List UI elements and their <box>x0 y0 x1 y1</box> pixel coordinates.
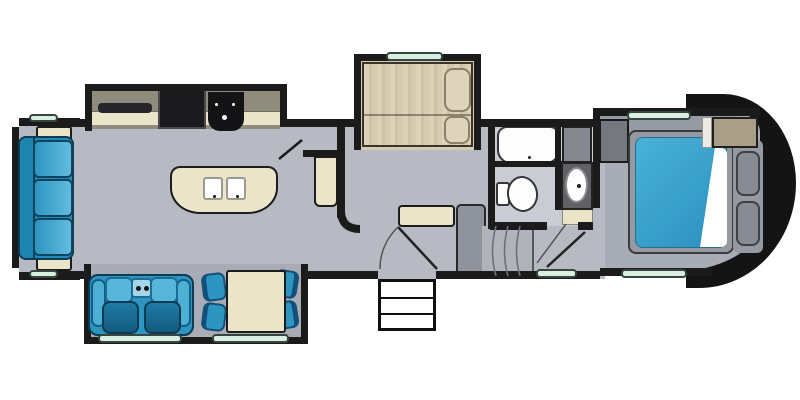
pillow <box>444 68 471 112</box>
pillow <box>736 201 760 246</box>
vanity-sink-oval <box>565 167 588 203</box>
seat-back <box>150 277 178 303</box>
window-rear-top <box>29 114 58 122</box>
sofabed-wall-right <box>474 54 481 150</box>
burner-dot <box>232 103 235 106</box>
cupholder <box>144 286 149 291</box>
partition-wall-vertical <box>337 122 345 218</box>
window-slideout-right <box>212 334 289 343</box>
shower-tub <box>497 126 560 164</box>
window-slideout-left <box>98 334 182 343</box>
bath-wall-under-tub <box>490 161 562 167</box>
partition-wall-stub <box>303 150 345 157</box>
window-bedroom-bottom <box>621 269 687 278</box>
top-wall-1 <box>55 119 92 127</box>
seat-back <box>105 277 133 303</box>
bath-wall-bottom <box>490 222 547 230</box>
faucet-dot <box>236 195 239 198</box>
top-wall-2 <box>281 119 361 127</box>
rv-floorplan <box>0 0 800 400</box>
nightstand-panel <box>733 140 763 253</box>
vanity-counter <box>561 162 593 210</box>
wardrobe-dresser <box>599 119 629 163</box>
top-wall-3 <box>474 119 600 127</box>
burner-dot <box>215 103 218 106</box>
window-sofabed <box>386 52 443 61</box>
kitchen-slideout-wall-top <box>85 84 287 91</box>
pillow <box>444 116 470 144</box>
cupholder-console <box>131 278 152 298</box>
range-cooktop <box>208 92 244 131</box>
sofabed-wall-left <box>354 54 361 150</box>
seat-cushion <box>102 301 139 334</box>
sofa-cushion <box>33 218 73 256</box>
rear-sofa <box>18 136 74 260</box>
faucet-dot <box>213 195 216 198</box>
entry-steps <box>378 279 436 331</box>
bath-wall-left <box>488 122 495 229</box>
step-divider <box>381 297 433 299</box>
dinette-table <box>226 270 286 333</box>
window-bedroom-top <box>627 111 691 120</box>
overhead-cabinet <box>712 117 758 148</box>
bottom-wall-1 <box>55 271 90 279</box>
bedroom-white-strip <box>702 117 712 148</box>
seat-cushion <box>144 301 181 334</box>
bottom-wall-2 <box>302 271 378 279</box>
tv-shelf <box>98 103 152 113</box>
bedroom-left-wall <box>593 108 600 208</box>
bench-seat <box>398 205 455 227</box>
linen-closet <box>562 126 592 163</box>
dinette-chair <box>200 272 227 303</box>
window-hall <box>536 269 577 278</box>
refrigerator <box>158 88 206 129</box>
faucet-dot <box>577 184 581 188</box>
pillow <box>736 151 760 196</box>
sink-basin <box>226 177 246 200</box>
sink-basin <box>203 177 223 200</box>
bath-door-post <box>578 222 593 230</box>
bath-wall-mid <box>555 122 561 210</box>
interior-steps <box>482 226 534 276</box>
sofa-cushion <box>33 179 73 217</box>
kitchen-island <box>170 166 278 214</box>
burner-dot <box>222 115 227 120</box>
drain-dot <box>528 156 531 159</box>
sofa-cushion <box>33 140 73 178</box>
cupholder <box>136 286 141 291</box>
step-divider <box>381 313 433 315</box>
theater-seating <box>88 274 194 336</box>
pantry <box>314 156 338 207</box>
dinette-chair <box>200 302 227 333</box>
window-rear-bottom <box>29 270 58 278</box>
